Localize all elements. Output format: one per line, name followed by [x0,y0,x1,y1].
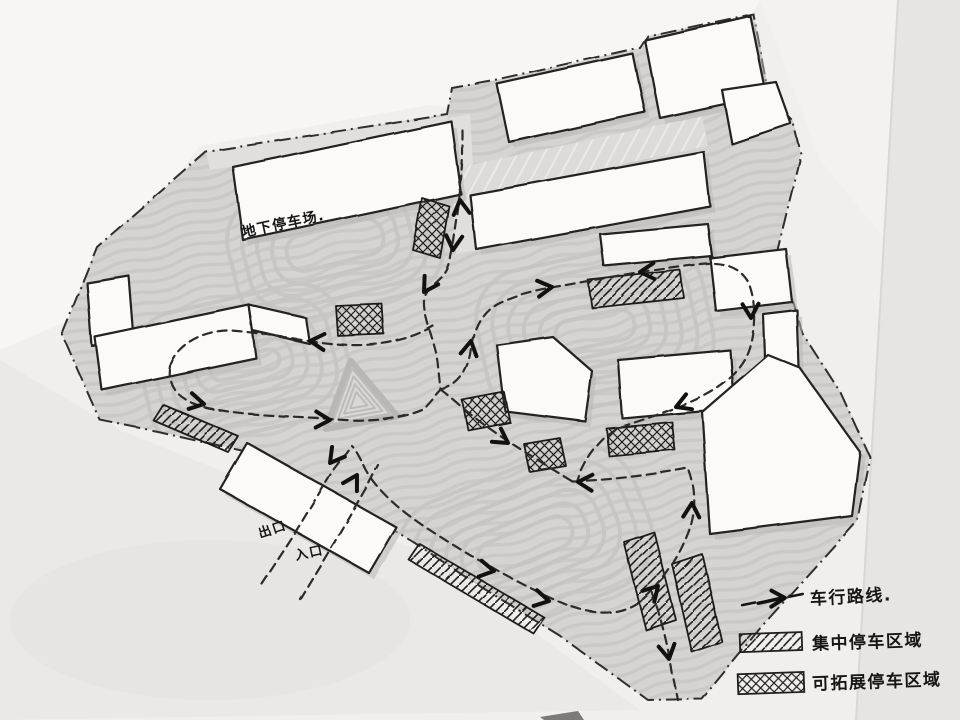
expandable-parking-hatch [336,304,384,336]
expandable-parking-hatch [606,422,675,456]
diagonal-hatch-swatch [740,632,803,652]
sketch-photo: 地下停车场. 出口 入口 车行路线. 集中停车区域 可拓展停车区域 [0,0,960,720]
site-plan-sketch: 地下停车场. 出口 入口 车行路线. 集中停车区域 可拓展停车区域 [0,0,960,720]
legend-parking-label: 集中停车区域 [811,630,924,655]
building-court-east [710,249,792,311]
legend-route-label: 车行路线. [809,584,892,609]
cross-hatch-swatch [738,672,805,694]
